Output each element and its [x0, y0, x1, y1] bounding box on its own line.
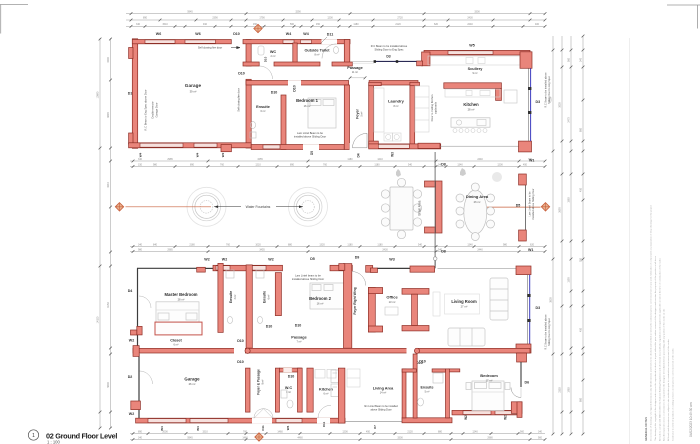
- svg-text:880: 880: [288, 244, 293, 247]
- svg-text:D10: D10: [237, 339, 244, 343]
- svg-text:1 : 100: 1 : 100: [47, 440, 60, 444]
- svg-text:D3: D3: [536, 100, 541, 104]
- svg-text:cupboards: cupboards: [434, 101, 438, 114]
- svg-text:880: 880: [580, 397, 583, 402]
- svg-text:D6: D6: [525, 381, 530, 385]
- svg-text:5945: 5945: [187, 10, 193, 13]
- svg-text:1180: 1180: [377, 244, 383, 247]
- svg-text:Sliding Door to Eng Spec: Sliding Door to Eng Spec: [548, 317, 551, 346]
- svg-text:All work to comply with SANS 1: All work to comply with SANS 10400, the …: [658, 257, 661, 441]
- svg-text:39 m²: 39 m²: [190, 90, 197, 94]
- svg-text:All levels and dimensions are: All levels and dimensions are subject to…: [667, 338, 670, 441]
- svg-text:W2: W2: [268, 258, 273, 262]
- svg-text:620: 620: [530, 244, 535, 247]
- svg-text:1180: 1180: [374, 164, 380, 167]
- svg-text:1340: 1340: [457, 164, 463, 167]
- svg-text:D10: D10: [271, 91, 278, 95]
- svg-text:760: 760: [580, 257, 583, 262]
- svg-text:2120: 2120: [395, 23, 401, 26]
- svg-text:450: 450: [580, 187, 583, 192]
- svg-text:Ensuite: Ensuite: [421, 386, 434, 390]
- svg-text:D10: D10: [295, 324, 302, 328]
- svg-text:900: 900: [520, 431, 525, 434]
- svg-text:340: 340: [138, 158, 143, 161]
- svg-text:5945: 5945: [187, 437, 193, 440]
- svg-text:760: 760: [220, 164, 225, 167]
- svg-text:W2: W2: [504, 415, 508, 420]
- svg-text:Sliding Door to Eng Spec: Sliding Door to Eng Spec: [375, 48, 405, 52]
- svg-text:Garage: Garage: [185, 83, 202, 88]
- svg-text:04/02/2023 10:49:30 am: 04/02/2023 10:49:30 am: [689, 402, 693, 437]
- svg-text:17 m²: 17 m²: [486, 379, 493, 383]
- svg-text:Dining Area: Dining Area: [466, 194, 489, 199]
- svg-text:1210: 1210: [255, 164, 261, 167]
- svg-text:W.C: W.C: [285, 386, 292, 390]
- svg-text:2430: 2430: [467, 17, 473, 20]
- svg-text:Self closing fire door: Self closing fire door: [198, 46, 222, 50]
- svg-text:340: 340: [538, 431, 543, 434]
- svg-text:2240: 2240: [467, 23, 473, 26]
- svg-text:Floor to Ceiling Kitchen: Floor to Ceiling Kitchen: [430, 94, 434, 121]
- svg-text:560: 560: [568, 57, 571, 62]
- svg-text:Outside Toilet: Outside Toilet: [304, 49, 330, 53]
- svg-text:2440: 2440: [477, 249, 483, 252]
- svg-text:Living Area: Living Area: [373, 387, 394, 391]
- svg-text:installed above Sliding Door: installed above Sliding Door: [294, 135, 326, 139]
- svg-text:1590: 1590: [568, 277, 571, 283]
- svg-text:9 m²: 9 m²: [473, 72, 478, 75]
- svg-text:D4: D4: [128, 289, 133, 293]
- svg-text:890: 890: [138, 431, 143, 434]
- svg-text:D11: D11: [322, 422, 326, 428]
- svg-text:890: 890: [290, 164, 295, 167]
- svg-text:Water Fountains: Water Fountains: [246, 205, 271, 209]
- svg-text:D10: D10: [237, 360, 244, 364]
- svg-text:Do not scale off drawings. Use: Do not scale off drawings. Use figured d…: [650, 205, 653, 441]
- svg-text:16 m²: 16 m²: [317, 302, 324, 306]
- svg-text:2985: 2985: [167, 249, 173, 252]
- svg-text:27 m²: 27 m²: [461, 305, 468, 309]
- svg-text:1020: 1020: [255, 244, 261, 247]
- svg-text:Any discrepancies errors or om: Any discrepancies errors or omissions to…: [663, 308, 666, 441]
- svg-text:Foyer Right Wing: Foyer Right Wing: [353, 287, 357, 314]
- svg-text:D10: D10: [238, 72, 245, 76]
- svg-text:1510: 1510: [202, 431, 208, 434]
- svg-text:6 m²: 6 m²: [324, 393, 329, 396]
- svg-text:8 m²: 8 m²: [394, 105, 399, 108]
- svg-text:W4: W4: [303, 32, 308, 36]
- svg-text:2430: 2430: [382, 249, 388, 252]
- svg-text:340: 340: [138, 437, 143, 440]
- svg-text:14 m²: 14 m²: [380, 392, 387, 395]
- svg-text:1180: 1180: [347, 244, 353, 247]
- svg-text:6890: 6890: [107, 112, 110, 118]
- svg-text:GENERAL NOTES: GENERAL NOTES: [644, 417, 648, 441]
- svg-text:1880: 1880: [568, 197, 571, 203]
- svg-text:980: 980: [153, 164, 158, 167]
- svg-text:Scullery: Scullery: [468, 67, 484, 71]
- svg-text:1980: 1980: [568, 387, 571, 393]
- svg-text:1240: 1240: [472, 431, 478, 434]
- svg-text:760: 760: [226, 244, 231, 247]
- svg-text:Passage: Passage: [347, 66, 362, 70]
- svg-text:910: 910: [203, 23, 208, 26]
- svg-text:W3: W3: [389, 258, 394, 262]
- svg-text:D1: D1: [128, 92, 133, 96]
- svg-text:1460: 1460: [277, 431, 283, 434]
- svg-text:13 m²: 13 m²: [389, 300, 396, 304]
- svg-text:3800: 3800: [550, 297, 553, 303]
- svg-text:Lam Lintel beam to be: Lam Lintel beam to be: [295, 274, 321, 278]
- svg-text:Foyer: Foyer: [356, 109, 360, 119]
- svg-text:540: 540: [408, 164, 413, 167]
- svg-text:D10: D10: [266, 325, 273, 329]
- svg-text:Laundry: Laundry: [388, 99, 405, 104]
- svg-text:760: 760: [243, 431, 248, 434]
- svg-text:W4: W4: [196, 152, 200, 157]
- svg-text:6 m²: 6 m²: [174, 344, 179, 347]
- svg-text:Foyer & Passage: Foyer & Passage: [257, 369, 261, 395]
- svg-text:WC: WC: [270, 50, 277, 54]
- svg-text:W2: W2: [221, 152, 225, 157]
- svg-text:3300: 3300: [397, 437, 403, 440]
- svg-text:150: 150: [138, 164, 143, 167]
- svg-text:W2: W2: [129, 339, 134, 343]
- svg-text:10890: 10890: [97, 91, 100, 98]
- svg-text:D5: D5: [310, 151, 314, 155]
- svg-text:1510: 1510: [162, 23, 168, 26]
- svg-text:D8: D8: [441, 163, 446, 167]
- svg-text:Ensuite: Ensuite: [263, 291, 267, 303]
- svg-text:W6: W6: [195, 32, 200, 36]
- svg-text:900: 900: [538, 437, 543, 440]
- svg-text:Bedroom 2: Bedroom 2: [309, 296, 332, 301]
- svg-text:760: 760: [323, 164, 328, 167]
- svg-text:340: 340: [136, 23, 141, 26]
- svg-text:D3: D3: [536, 306, 541, 310]
- svg-text:2470: 2470: [568, 117, 571, 123]
- svg-text:840: 840: [153, 244, 158, 247]
- svg-text:W2: W2: [129, 412, 134, 416]
- svg-text:Self closing fire door: Self closing fire door: [237, 88, 241, 112]
- svg-text:2440: 2440: [477, 158, 483, 161]
- svg-text:This drawing is the copyright: This drawing is the copyright of the des…: [654, 255, 657, 441]
- svg-text:above Sliding Door: above Sliding Door: [370, 409, 391, 412]
- svg-text:Garage: Garage: [184, 377, 200, 382]
- svg-text:1200: 1200: [342, 431, 348, 434]
- svg-text:W1: W1: [529, 159, 534, 163]
- svg-text:1790: 1790: [259, 17, 265, 20]
- svg-text:W2: W2: [464, 415, 468, 420]
- svg-text:installed above Sliding Door: installed above Sliding Door: [532, 188, 535, 219]
- svg-text:1460: 1460: [242, 437, 248, 440]
- svg-text:3000: 3000: [559, 102, 562, 108]
- svg-text:450: 450: [366, 431, 371, 434]
- svg-text:980: 980: [503, 244, 508, 247]
- svg-text:Sliding Door to Eng Spec: Sliding Door to Eng Spec: [548, 75, 551, 104]
- svg-text:1200: 1200: [497, 164, 503, 167]
- svg-text:8150: 8150: [107, 302, 110, 308]
- svg-text:installed above Sliding Door: installed above Sliding Door: [292, 277, 324, 281]
- svg-text:340: 340: [580, 57, 583, 62]
- svg-text:450: 450: [316, 23, 321, 26]
- svg-text:5 m²: 5 m²: [361, 111, 364, 116]
- svg-text:4 m²: 4 m²: [234, 294, 237, 299]
- svg-text:26 m²: 26 m²: [189, 382, 196, 386]
- svg-text:890: 890: [190, 164, 195, 167]
- svg-text:W1: W1: [528, 248, 533, 252]
- svg-text:14520: 14520: [97, 316, 100, 323]
- svg-text:W5: W5: [469, 44, 474, 48]
- svg-text:D3: D3: [386, 55, 390, 59]
- svg-text:Ensuite: Ensuite: [229, 291, 233, 303]
- svg-text:5800: 5800: [107, 382, 110, 388]
- svg-text:D5: D5: [310, 257, 315, 261]
- svg-text:Kitchen: Kitchen: [463, 102, 479, 107]
- svg-text:Braai Area: Braai Area: [418, 200, 422, 215]
- svg-text:2690: 2690: [559, 207, 562, 213]
- svg-text:1180: 1180: [353, 23, 359, 26]
- svg-text:R.C Beam to Eng Spec above Doo: R.C Beam to Eng Spec above Door: [144, 89, 148, 130]
- svg-text:D7: D7: [373, 425, 377, 429]
- svg-text:1320: 1320: [319, 244, 325, 247]
- svg-text:1200: 1200: [327, 17, 333, 20]
- svg-text:540: 540: [418, 244, 423, 247]
- svg-text:D11: D11: [261, 425, 265, 431]
- svg-text:3455: 3455: [259, 249, 265, 252]
- svg-text:4460: 4460: [297, 437, 303, 440]
- svg-text:D10: D10: [293, 85, 297, 92]
- svg-text:D10: D10: [419, 360, 426, 364]
- svg-text:2 m²: 2 m²: [271, 55, 276, 58]
- svg-text:450: 450: [580, 327, 583, 332]
- svg-text:28 m²: 28 m²: [178, 298, 185, 302]
- svg-text:1: 1: [32, 433, 35, 439]
- svg-text:11 m²: 11 m²: [352, 71, 358, 74]
- svg-text:W4: W4: [286, 425, 290, 430]
- svg-text:620: 620: [434, 23, 439, 26]
- svg-text:D4: D4: [357, 153, 361, 157]
- svg-text:W2: W2: [222, 258, 227, 262]
- svg-text:4640: 4640: [107, 182, 110, 188]
- svg-text:26 m²: 26 m²: [474, 200, 481, 204]
- svg-text:Kitchen: Kitchen: [319, 388, 334, 392]
- svg-text:2120: 2120: [407, 431, 413, 434]
- svg-text:340: 340: [138, 244, 143, 247]
- svg-text:W4: W4: [286, 32, 291, 36]
- svg-text:8 m²: 8 m²: [262, 379, 265, 384]
- svg-text:3290: 3290: [295, 10, 301, 13]
- svg-text:Bedroom 1: Bedroom 1: [296, 98, 319, 103]
- svg-text:880: 880: [438, 431, 443, 434]
- svg-text:Living Room: Living Room: [451, 299, 477, 304]
- svg-text:2980: 2980: [487, 437, 493, 440]
- svg-text:W6: W6: [156, 32, 161, 36]
- svg-text:W2: W2: [204, 258, 209, 262]
- svg-text:D11: D11: [327, 33, 333, 37]
- svg-text:W3: W3: [391, 152, 395, 157]
- svg-text:880: 880: [580, 127, 583, 132]
- svg-text:7 m²: 7 m²: [297, 341, 302, 344]
- svg-text:2720: 2720: [397, 17, 403, 20]
- svg-text:2350: 2350: [559, 387, 562, 393]
- svg-text:Passage: Passage: [291, 336, 306, 340]
- svg-text:D2: D2: [128, 375, 133, 379]
- svg-text:2985: 2985: [167, 158, 173, 161]
- svg-text:6 m²: 6 m²: [268, 294, 271, 299]
- svg-text:Bedroom: Bedroom: [480, 373, 498, 378]
- svg-text:450: 450: [523, 164, 528, 167]
- svg-text:980: 980: [138, 249, 143, 252]
- svg-text:4000: 4000: [107, 57, 110, 63]
- svg-text:Double remote: Double remote: [151, 101, 155, 119]
- svg-text:400: 400: [535, 23, 540, 26]
- svg-text:D10: D10: [264, 56, 268, 62]
- svg-text:1210: 1210: [377, 158, 383, 161]
- svg-text:890: 890: [143, 17, 148, 20]
- svg-text:W4: W4: [160, 426, 164, 431]
- svg-text:D5: D5: [516, 204, 521, 208]
- svg-text:6 m²: 6 m²: [261, 110, 266, 113]
- svg-text:1340: 1340: [467, 244, 473, 247]
- svg-text:1180: 1180: [347, 158, 353, 161]
- svg-text:560: 560: [290, 23, 295, 26]
- svg-text:2390: 2390: [212, 17, 218, 20]
- svg-text:Closet: Closet: [170, 339, 182, 343]
- svg-text:5 m²: 5 m²: [425, 391, 430, 394]
- svg-text:D8: D8: [441, 249, 446, 253]
- svg-text:3300: 3300: [474, 10, 480, 13]
- svg-text:28 m²: 28 m²: [468, 108, 475, 112]
- svg-text:Ensuite: Ensuite: [256, 105, 270, 109]
- svg-text:D9: D9: [355, 256, 360, 260]
- svg-text:Office: Office: [386, 295, 398, 300]
- svg-text:D10: D10: [288, 375, 295, 379]
- svg-text:8 m²: 8 m²: [315, 54, 320, 57]
- svg-text:16 m²: 16 m²: [304, 104, 311, 108]
- svg-text:Contractor to verify all posit: Contractor to verify all positions of ex…: [672, 347, 675, 441]
- svg-text:2180: 2180: [189, 244, 195, 247]
- svg-text:W4: W4: [139, 152, 143, 157]
- svg-text:W4: W4: [196, 426, 200, 431]
- svg-text:Master Bedroom: Master Bedroom: [164, 292, 197, 297]
- svg-text:Lam Lintel Beam to be: Lam Lintel Beam to be: [297, 131, 324, 135]
- svg-text:Garage Door: Garage Door: [155, 102, 159, 117]
- svg-text:D10: D10: [233, 32, 240, 36]
- svg-text:3455: 3455: [257, 158, 263, 161]
